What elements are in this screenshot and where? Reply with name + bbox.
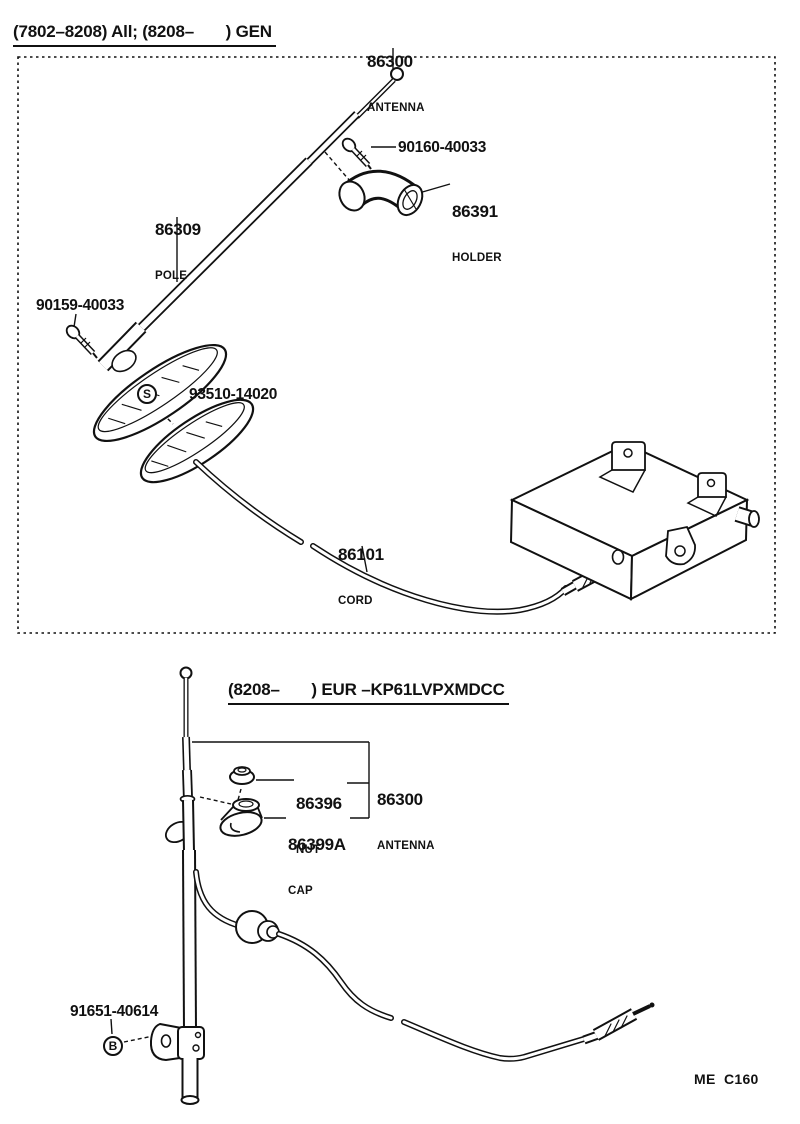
antenna-d2-part-name: ANTENNA: [377, 841, 435, 853]
antenna-cable-icon: [196, 872, 655, 1059]
cap-icon: [218, 799, 264, 840]
diagram2-art: [111, 668, 655, 1105]
label-holder: 86391 HOLDER: [452, 170, 502, 297]
amplifier-box-icon: [511, 442, 759, 599]
label-screw-lower: 90159-40033: [36, 297, 124, 315]
label-pole: 86309 POLE: [155, 188, 201, 315]
label-bolt: 91651-40614: [70, 1003, 158, 1021]
mast-clamp-icon: [151, 1024, 204, 1104]
cap-part-no: 86399A: [288, 836, 346, 853]
nut-icon: [230, 767, 254, 784]
antenna-d1-part-name: ANTENNA: [367, 103, 425, 115]
antenna-d1-part-no: 86300: [367, 53, 425, 70]
label-pad: 93510-14020: [189, 386, 277, 404]
antenna-pole-icon: [103, 68, 403, 366]
parts-catalog-page: (7802–8208) All; (8208– ) GEN 86300 ANTE…: [0, 0, 800, 1124]
label-antenna-d2: 86300 ANTENNA: [377, 758, 435, 885]
cap-part-name: CAP: [288, 886, 346, 898]
label-cord: 86101 CORD: [338, 513, 384, 640]
antenna-mast-icon: [162, 668, 194, 1033]
diagram1-header: (7802–8208) All; (8208– ) GEN: [13, 23, 276, 47]
holder-part-name: HOLDER: [452, 253, 502, 265]
cord-part-name: CORD: [338, 596, 384, 608]
diagram-line-art: [0, 0, 800, 1124]
pole-part-name: POLE: [155, 271, 201, 283]
label-antenna-d1: 86300 ANTENNA: [367, 20, 425, 147]
marker-s-icon: S: [137, 384, 157, 404]
label-screw-upper: 90160-40033: [398, 139, 486, 157]
screw-lower-icon: [64, 323, 97, 358]
marker-b-icon: B: [103, 1036, 123, 1056]
label-cap: 86399A CAP: [288, 803, 346, 930]
holder-icon: [335, 177, 427, 219]
diagram2-header: (8208– ) EUR –KP61LVPXMDCC: [228, 681, 509, 705]
cord-part-no: 86101: [338, 546, 384, 563]
page-code: ME C160: [694, 1071, 759, 1087]
antenna-d2-part-no: 86300: [377, 791, 435, 808]
pole-part-no: 86309: [155, 221, 201, 238]
holder-part-no: 86391: [452, 203, 502, 220]
